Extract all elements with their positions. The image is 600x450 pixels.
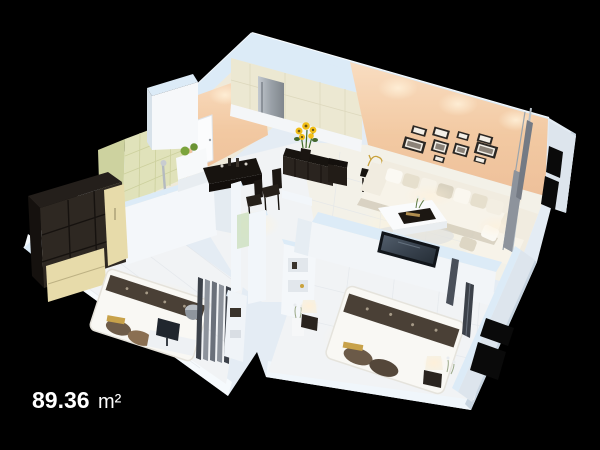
area-label: 89.36 m² [32,387,122,413]
door-knob [209,139,211,141]
wardrobe-door [104,184,128,266]
frosted-glass [237,212,249,249]
tv-cabinet [328,158,348,186]
area-value: 89.36 [32,387,90,413]
bedroom-shelf [224,290,247,362]
apartment-3d-floorplan: 89.36 m² [0,0,600,450]
floor-plan-render: 89.36 m² [0,0,600,450]
topiary-ball [181,147,190,156]
topiary-ball [190,143,198,151]
area-unit: m² [98,391,122,413]
